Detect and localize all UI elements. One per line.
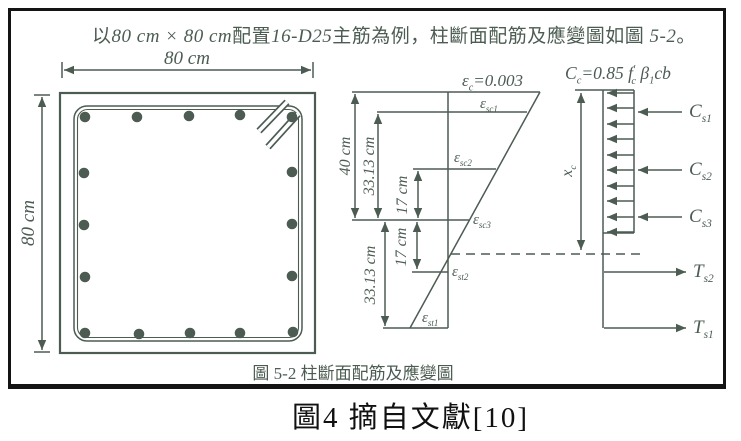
stirrup-inner xyxy=(78,110,299,338)
dim-40cm-label: 40 cm xyxy=(337,137,355,176)
rebar-dot xyxy=(288,327,299,338)
rebar-dot xyxy=(184,111,195,122)
concrete-stress-arrows xyxy=(607,93,634,232)
ts2-label: Ts2 xyxy=(693,261,714,285)
stirrup-hooks xyxy=(259,102,298,147)
strain-profile-line xyxy=(410,92,540,328)
steel-force-arrows xyxy=(604,112,686,328)
rebar-dots xyxy=(79,110,299,340)
stirrup-outer xyxy=(74,106,302,341)
cs1-label: Cs1 xyxy=(689,101,712,125)
height-dimension-label: 80 cm xyxy=(18,200,40,246)
dim-3313cm-top-label: 33.13 cm xyxy=(361,137,379,196)
rebar-dot xyxy=(185,328,196,339)
rebar-dot xyxy=(235,110,246,121)
column-outline xyxy=(60,93,315,353)
rebar-dot xyxy=(80,328,91,339)
strain-est1-label: εst1 xyxy=(422,310,438,328)
rebar-dot xyxy=(80,112,91,123)
rebar-dot xyxy=(79,220,90,231)
xc-dimension-label: xc xyxy=(559,165,579,176)
rebar-dot xyxy=(80,272,91,283)
figure-4-caption: 圖4 摘自文獻[10] xyxy=(292,394,529,436)
figure-screenshot: 以80 cm × 80 cm配置16-D25主筋為例，柱斷面配筋及應變圖如圖 5… xyxy=(0,0,741,441)
concrete-force-equation: Cc=0.85 f′c β1cb xyxy=(565,63,671,87)
dim-17cm-top-label: 17 cm xyxy=(394,176,412,215)
rebar-dot xyxy=(134,329,145,340)
rebar-dot xyxy=(287,167,298,178)
cs3-label: Cs3 xyxy=(689,206,712,230)
rebar-dot xyxy=(287,112,298,123)
rebar-dot xyxy=(287,271,298,282)
strain-esc3-label: εsc3 xyxy=(473,212,491,230)
figure-5-2-caption: 圖 5-2 柱斷面配筋及應變圖 xyxy=(238,359,468,384)
strain-esc1-label: εsc1 xyxy=(480,96,498,114)
dim-17cm-bottom-label: 17 cm xyxy=(393,228,411,267)
strain-est2-label: εst2 xyxy=(452,264,468,282)
cs2-label: Cs2 xyxy=(689,159,712,183)
stress-block-drawing xyxy=(575,90,686,328)
rebar-dot xyxy=(132,112,143,123)
strain-esc2-label: εsc2 xyxy=(454,150,472,168)
rebar-dot xyxy=(235,328,246,339)
dim-3313cm-bottom-label: 33.13 cm xyxy=(362,246,380,305)
ts1-label: Ts1 xyxy=(693,317,714,341)
column-section-drawing xyxy=(34,62,315,353)
rebar-dot xyxy=(287,219,298,230)
rebar-dot xyxy=(79,168,90,179)
strain-ec-label: εc=0.003 xyxy=(462,71,523,93)
